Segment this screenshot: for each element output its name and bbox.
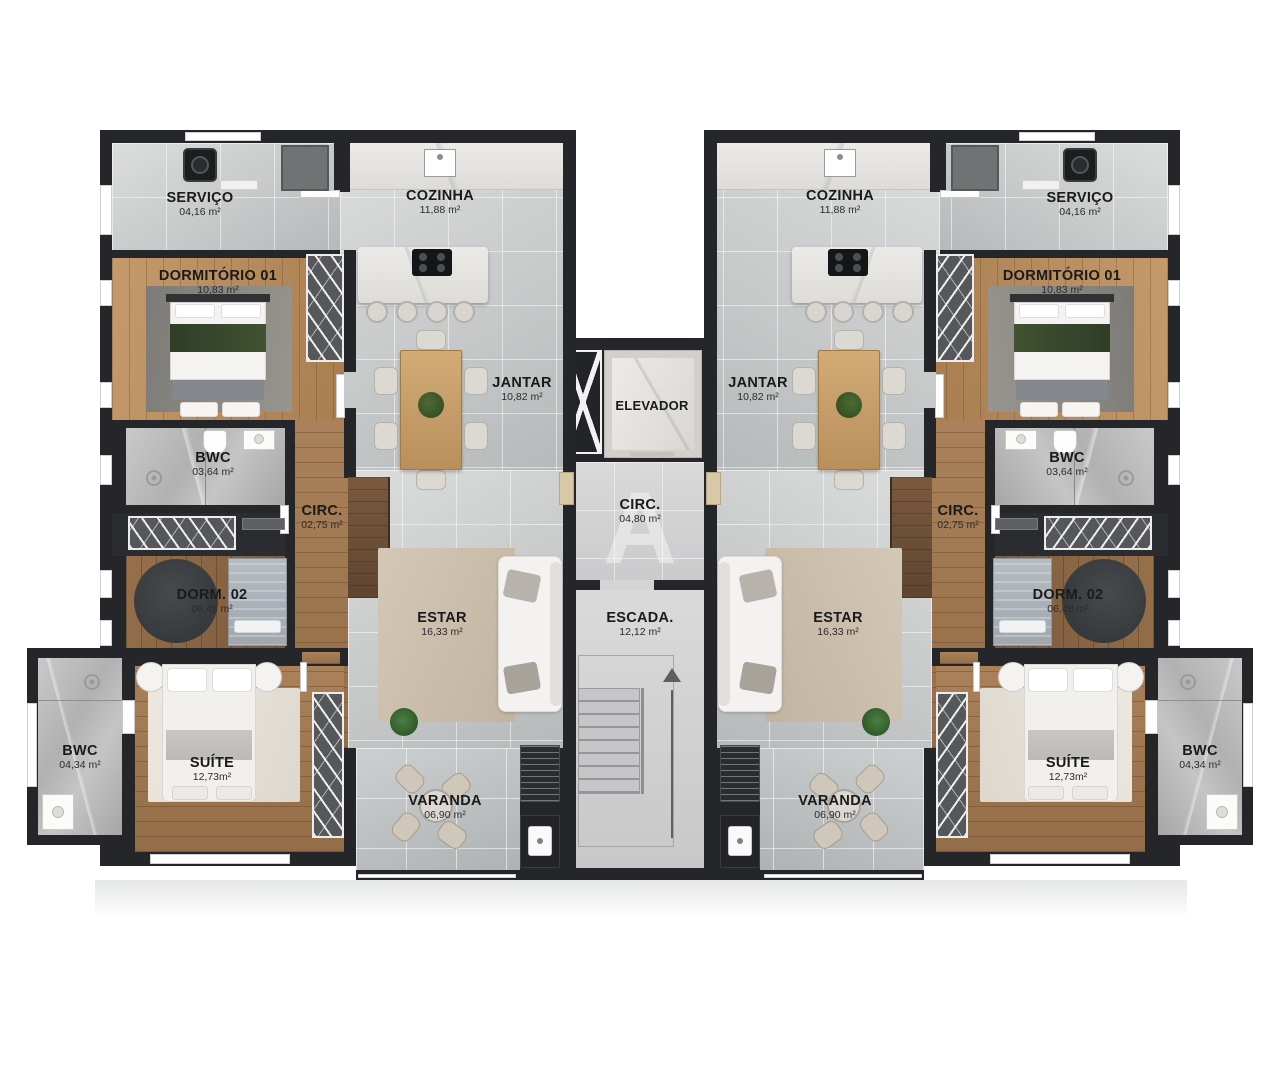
door-bwc-suite [122,700,135,734]
dorm02-pillow [234,620,281,633]
sofa-pillow-2 [503,661,541,694]
tech-basin-drain [537,838,543,844]
estar-plant-r [862,708,890,736]
door-bwc-suite-r [1145,700,1158,734]
window-servico-top [185,132,261,141]
table-plant-r [836,392,862,418]
suite-wardrobe-r [936,692,968,838]
varanda-glass-rail-r [764,874,922,878]
dining-chair-top [416,330,446,350]
shower-head-social-r [1118,470,1134,486]
window-dorm01-b [100,382,112,408]
door-dorm01 [336,374,345,418]
dining-chair-right-1-r [792,367,816,395]
stool-1-r [892,301,914,323]
suite-pillow-2-r [1028,668,1068,692]
dorm02-shelf-r [995,518,1038,530]
unit-left: SERVIÇO 04,16 m² COZINHA 11,88 m² DORMIT… [25,130,575,888]
stair-direction-arrow-icon [663,668,681,682]
window-dorm02-a [100,570,112,598]
varanda-table [419,789,453,823]
dorm02-pillow-r [999,620,1046,633]
dorm01-pillow-2 [221,304,261,318]
stool-3 [426,301,448,323]
suite-cushion-1 [172,786,208,800]
dorm01-throw-blanket [170,324,266,352]
suite-nightstand-right [252,662,282,692]
window-dorm02-b-r [1168,620,1180,646]
window-dorm01-a-r [1168,280,1180,306]
stair-rail [641,688,644,794]
wall-circ-jantar [344,408,356,478]
stool-3-r [832,301,854,323]
tall-cabinet [281,145,329,191]
laundry-shelf-r [1022,180,1060,190]
door-suite-leaf-r [973,662,980,692]
floor-plan: ELEVADOR A CIRC. 04,80 m² ESCADA. 12,12 … [0,0,1280,1067]
window-bwc-social-r [1168,455,1180,485]
dorm02-wardrobe-r [1044,516,1152,550]
wall-servico-cozinha-r [930,143,946,192]
wall-dorm01-right-r [924,250,936,372]
vanity-social-basin-r [1016,434,1026,444]
window-servico-r [1168,185,1180,235]
dorm01-wardrobe [306,254,344,362]
bwc-suite-divider [38,700,122,701]
suite-blanket-band-r [1028,730,1114,760]
suite-nightstand-left-r [1114,662,1144,692]
window-bwc-suite-r [1243,703,1253,787]
laundry-shelf [220,180,258,190]
shower-head-suite-r [1180,674,1196,690]
door-dorm01-r [935,374,944,418]
tall-cabinet-r [951,145,999,191]
cooktop [412,249,452,276]
dining-chair-right-2 [464,422,488,450]
dorm01-cushion-1-r [1062,402,1100,417]
kitchen-counter [350,143,563,190]
window-suite [150,854,290,864]
window-bwc-social [100,455,112,485]
dining-chair-bottom [416,470,446,490]
unit-right: SERVIÇO 04,16 m² COZINHA 11,88 m² DORMIT… [705,130,1255,888]
stool-2 [396,301,418,323]
suite-pillow-1 [167,668,207,692]
dorm02-round-rug-r [1062,559,1146,643]
suite-pillow-1-r [1073,668,1113,692]
suite-cushion-2-r [1028,786,1064,800]
dorm01-headboard [166,294,270,302]
shower-head-social [146,470,162,486]
suite-cushion-2 [216,786,252,800]
window-servico [100,185,112,235]
toilet-social [203,430,227,454]
varanda-glass-rail [358,874,516,878]
dorm01-wardrobe-r [936,254,974,362]
dorm01-cushion-2-r [1020,402,1058,417]
stool-2-r [862,301,884,323]
door-unit-entry-r [706,472,721,505]
toilet-social-r [1053,430,1077,454]
stool-4-r [805,301,827,323]
window-dorm02-b [100,620,112,646]
kitchen-faucet [437,154,443,160]
stool-1 [366,301,388,323]
suite-pillow-2 [212,668,252,692]
window-dorm01-a [100,280,112,306]
window-servico-top-r [1019,132,1095,141]
window-dorm02-a-r [1168,570,1180,598]
dorm01-foot-bench [172,380,264,400]
tech-basin-drain-r [737,838,743,844]
dorm01-throw-blanket-r [1014,324,1110,352]
tech-shaft-upper [520,745,560,802]
dining-chair-bottom-r [834,470,864,490]
cooktop-r [828,249,868,276]
bwc-suite-divider-r [1158,700,1242,701]
kitchen-faucet-r [837,154,843,160]
stair-treads [578,688,640,794]
estar-rug [378,548,515,722]
dorm02-round-rug [134,559,218,643]
shower-head-suite [84,674,100,690]
core-stair-opening [600,580,654,590]
dorm01-pillow-2-r [1019,304,1059,318]
estar-plant [390,708,418,736]
door-servico-passage-r [940,190,980,198]
window-suite-r [990,854,1130,864]
vanity-suite-basin-r [1216,806,1228,818]
door-unit-entry [559,472,574,505]
wall-dorm01-right [344,250,356,372]
wall-servico-cozinha [334,143,350,192]
window-dorm01-b-r [1168,382,1180,408]
dining-chair-left-2-r [882,422,906,450]
dorm01-headboard-r [1010,294,1114,302]
dining-chair-right-2-r [792,422,816,450]
dining-chair-left-1-r [882,367,906,395]
core-circulation-floor [566,462,714,580]
dining-chair-left-2 [374,422,398,450]
washing-machine-drum-r [1071,156,1089,174]
dorm01-pillow-1-r [1065,304,1105,318]
dining-chair-right-1 [464,367,488,395]
tech-shaft-upper-r [720,745,760,802]
washing-machine-drum [191,156,209,174]
estar-rug-r [765,548,902,722]
stair-direction-line [671,690,673,838]
sofa-pillow-2-r [739,661,777,694]
sofa-backrest-r [718,562,730,706]
table-plant [418,392,444,418]
vanity-social-basin [254,434,264,444]
dorm01-cushion-2 [222,402,260,417]
suite-cushion-1-r [1072,786,1108,800]
dorm01-foot-bench-r [1016,380,1108,400]
door-suite-opening [302,652,340,664]
wall-circ-jantar-r [924,408,936,478]
dining-chair-top-r [834,330,864,350]
suite-blanket-band [166,730,252,760]
elevator-door-line [630,452,674,458]
dorm01-pillow-1 [175,304,215,318]
door-servico-passage [300,190,340,198]
elevator-cab [612,358,694,450]
suite-wardrobe [312,692,344,838]
vanity-suite-basin [52,806,64,818]
stool-4 [453,301,475,323]
dorm02-wardrobe [128,516,236,550]
dorm02-shelf [242,518,285,530]
window-bwc-suite [27,703,37,787]
door-suite-leaf [300,662,307,692]
dining-chair-left-1 [374,367,398,395]
dorm01-cushion-1 [180,402,218,417]
varanda-table-r [827,789,861,823]
sofa-backrest [550,562,562,706]
